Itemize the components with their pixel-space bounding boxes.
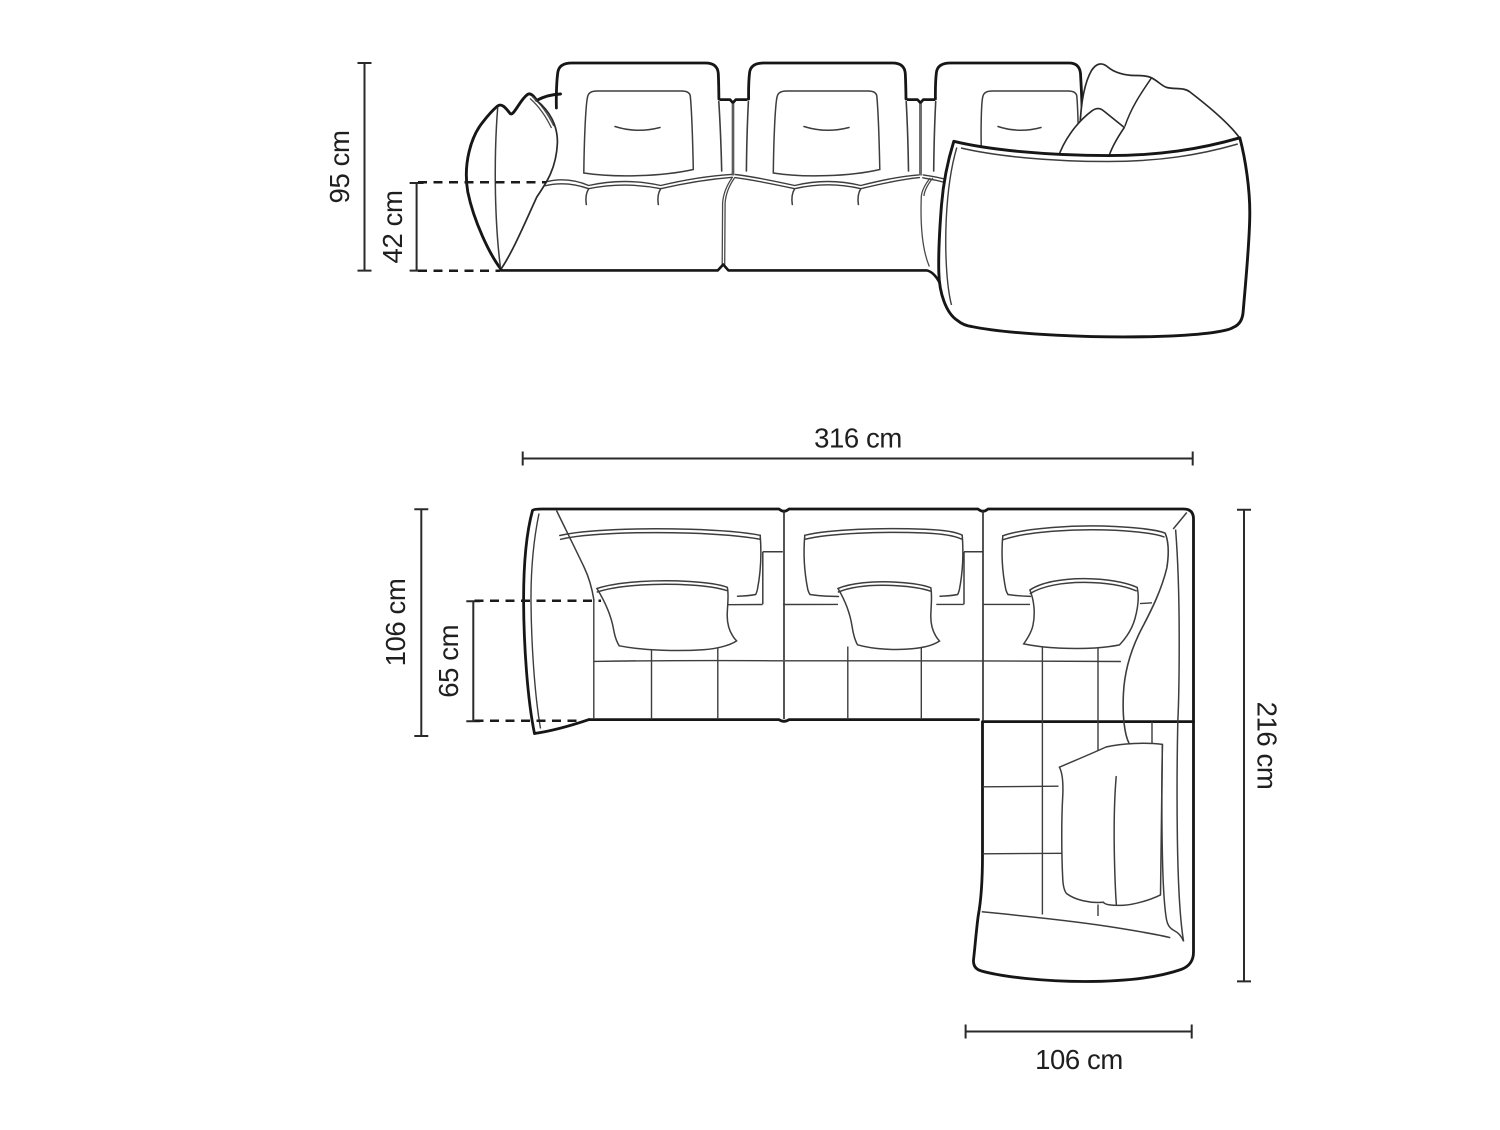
svg-text:316 cm: 316 cm: [814, 423, 902, 454]
svg-text:216 cm: 216 cm: [1252, 702, 1283, 790]
svg-text:95 cm: 95 cm: [324, 131, 355, 204]
svg-text:42 cm: 42 cm: [377, 191, 408, 264]
svg-text:106 cm: 106 cm: [1035, 1044, 1123, 1075]
svg-text:65 cm: 65 cm: [433, 625, 464, 698]
svg-text:106 cm: 106 cm: [380, 579, 411, 667]
